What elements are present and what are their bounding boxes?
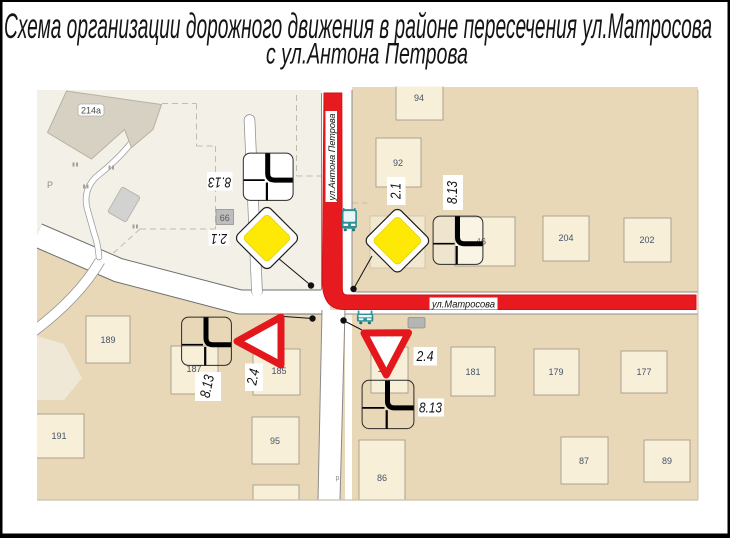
svg-text:2.1: 2.1: [388, 183, 404, 200]
svg-text:2.4: 2.4: [244, 367, 263, 387]
svg-text:179: 179: [548, 367, 563, 377]
svg-text:87: 87: [579, 456, 589, 466]
svg-text:8.13: 8.13: [208, 173, 231, 189]
svg-text:86: 86: [377, 473, 387, 483]
svg-text:204: 204: [558, 233, 573, 243]
svg-text:177: 177: [636, 367, 651, 377]
svg-text:191: 191: [51, 431, 66, 441]
svg-text:99: 99: [220, 213, 230, 223]
svg-text:181: 181: [465, 367, 480, 377]
svg-text:89: 89: [662, 456, 672, 466]
svg-text:8.13: 8.13: [419, 401, 442, 417]
svg-text:ул.Антона Петрова: ул.Антона Петрова: [327, 114, 337, 202]
svg-text:92: 92: [393, 158, 403, 168]
svg-text:2.1: 2.1: [211, 230, 228, 246]
svg-text:2.4: 2.4: [416, 349, 434, 365]
svg-text:P: P: [47, 180, 53, 190]
svg-text:95: 95: [270, 436, 280, 446]
svg-text:ул.Матросова: ул.Матросова: [431, 299, 495, 310]
svg-text:8.13: 8.13: [445, 181, 461, 204]
svg-text:p: p: [336, 475, 340, 482]
svg-text:189: 189: [100, 335, 115, 345]
svg-text:94: 94: [414, 93, 424, 103]
svg-text:214a: 214a: [81, 106, 101, 116]
svg-text:с ул.Антона Петрова: с ул.Антона Петрова: [266, 38, 468, 71]
svg-text:202: 202: [639, 235, 654, 245]
